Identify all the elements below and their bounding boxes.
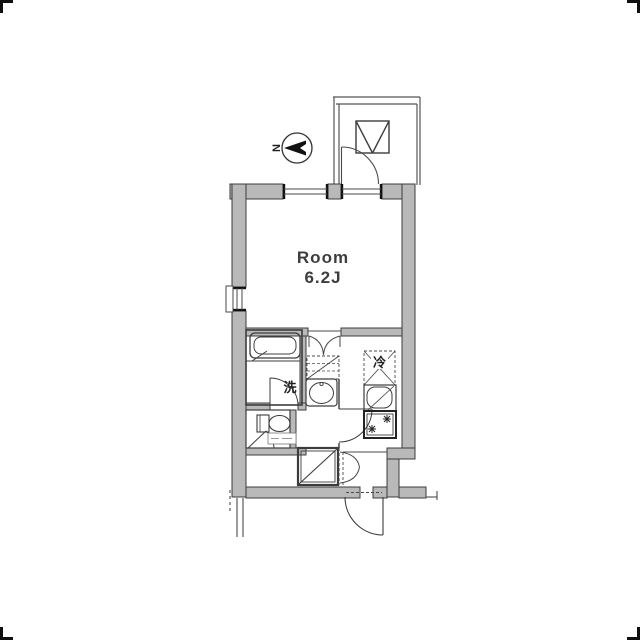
refrigerator-label: 冷 — [373, 355, 386, 370]
entrance-step-line — [343, 452, 387, 493]
toilet-room — [246, 410, 296, 448]
compass-n-label: N — [271, 144, 283, 152]
toilet-icon — [257, 415, 290, 432]
room-name: Room — [297, 248, 349, 267]
utility-strip — [306, 331, 372, 448]
toilet-tag — [268, 433, 296, 444]
room-label: Room 6.2J — [297, 248, 349, 287]
entrance-door-swing-icon — [345, 497, 383, 535]
washer-space-icon — [307, 356, 339, 379]
floor-plan-drawing: N — [0, 0, 640, 640]
kitchen: 冷 — [364, 351, 396, 438]
north-compass-icon: N — [271, 133, 312, 163]
washer-space-label: 洗 — [283, 380, 296, 395]
escape-hatch-icon — [356, 121, 389, 153]
west-window-icon — [226, 286, 242, 312]
floor-plan-page: N — [0, 0, 640, 640]
washbasin-icon — [306, 379, 337, 406]
window-jamb-ticks — [232, 184, 381, 310]
bathtub-icon — [246, 333, 300, 361]
kitchen-sink-icon — [364, 385, 396, 411]
room-size: 6.2J — [304, 268, 341, 287]
corner-marks — [2, 2, 639, 639]
double-door-swing-icon — [308, 331, 341, 355]
